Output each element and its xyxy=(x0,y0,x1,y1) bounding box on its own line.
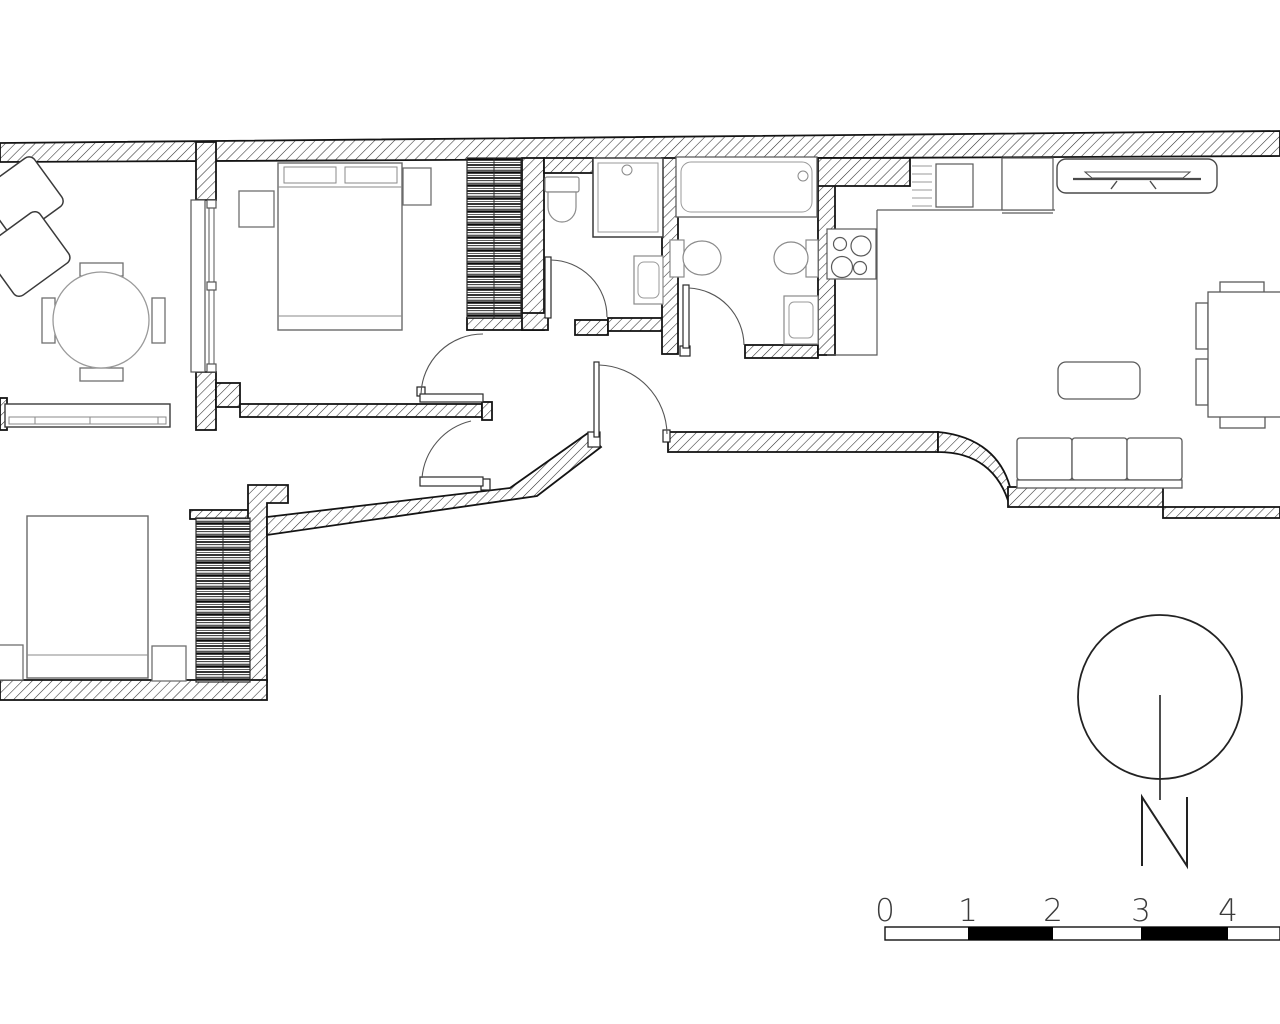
floor-plan-drawing: 0 1 2 3 4 xyxy=(0,0,1280,1024)
double-bed-icon xyxy=(278,163,402,330)
dining-chair-icon xyxy=(152,298,165,343)
scale-label-1: 1 xyxy=(958,893,978,929)
partition-tick xyxy=(207,282,216,290)
bathroom1-corner-piece xyxy=(522,313,548,330)
toilet-tank xyxy=(670,240,684,277)
washbasin-bowl xyxy=(638,262,659,298)
bedroom2-bottom-wall xyxy=(0,680,267,700)
sliding-partition xyxy=(191,200,216,372)
living-curved-wall xyxy=(938,432,1010,507)
shower-drain-icon xyxy=(622,165,632,175)
bathroom1-bottom-wall-a xyxy=(575,320,608,335)
dining-table-icon xyxy=(1208,292,1280,417)
washbasin-bowl xyxy=(789,302,813,338)
bathroom2-door-swing xyxy=(689,288,744,345)
scale-bar-black-segment xyxy=(968,927,1053,940)
nightstand-icon xyxy=(152,646,186,681)
bathroom-small xyxy=(545,158,663,304)
coffee-table-icon xyxy=(1058,362,1140,399)
bathroom-large xyxy=(670,157,818,344)
sitting-room-step-wall xyxy=(216,383,240,407)
sink-icon xyxy=(936,164,973,207)
window-sill xyxy=(9,417,166,424)
bedroom-bottom xyxy=(0,516,186,681)
bidet-bowl-icon xyxy=(774,242,808,274)
partition-panel xyxy=(191,200,205,372)
pillow-icon xyxy=(284,167,336,183)
scale-bar-black-segment xyxy=(1141,927,1228,940)
sofa-seat xyxy=(1072,438,1127,480)
toilet-bowl-icon xyxy=(548,192,576,222)
drainer-icon xyxy=(912,166,932,206)
entry-door-leaf xyxy=(594,362,599,437)
sofa-seat xyxy=(1127,438,1182,480)
corridor-door-leaf xyxy=(420,477,483,486)
nightstand-icon xyxy=(403,168,431,205)
chair-icon xyxy=(1196,359,1208,405)
sofa-icon xyxy=(1017,438,1182,488)
scale-label-0: 0 xyxy=(875,893,895,929)
appliance-unit xyxy=(1002,158,1053,210)
scale-bar: 0 1 2 3 4 xyxy=(875,893,1280,940)
bedroom-top xyxy=(239,163,431,330)
toilet-bowl-icon xyxy=(683,241,721,275)
bedroom1-door-leaf xyxy=(420,394,483,402)
kitchen-top-pier xyxy=(818,158,910,186)
scale-label-3: 3 xyxy=(1131,893,1151,929)
bedroom1-door-post xyxy=(482,402,492,420)
floor-plan-page: 0 1 2 3 4 xyxy=(0,0,1280,1024)
bedroom1-door-swing xyxy=(421,334,483,394)
partition-stub-upper xyxy=(196,142,216,200)
north-letter-N xyxy=(1142,797,1187,866)
dining-chair-icon xyxy=(80,368,123,381)
nightstand-icon xyxy=(0,645,23,680)
bathtub-drain-icon xyxy=(798,171,808,181)
north-symbol xyxy=(1078,615,1242,866)
pillow-icon xyxy=(345,167,397,183)
sofa-seat xyxy=(1017,438,1072,480)
bedroom1-bottom-wall xyxy=(240,404,482,417)
sitting-room xyxy=(0,154,170,427)
partition-tick xyxy=(207,200,216,208)
partition-tick xyxy=(207,364,216,372)
corridor-door-swing xyxy=(422,421,471,478)
chair-icon xyxy=(1220,416,1265,428)
bathroom2-door-leaf xyxy=(683,285,689,348)
bathtub-inner xyxy=(681,162,812,212)
nightstand-icon xyxy=(239,191,274,227)
kitchen xyxy=(827,158,1055,355)
partition-stub-lower xyxy=(196,372,216,430)
dining-set xyxy=(1196,282,1280,428)
double-bed-icon xyxy=(27,516,148,678)
living-bottom-wall-step xyxy=(1163,507,1280,518)
bathroom2-bottom-wall xyxy=(745,345,818,358)
bathroom1-top-pier xyxy=(544,158,593,173)
bathroom1-bottom-wall-b xyxy=(608,318,667,331)
entry-bottom-wall xyxy=(668,432,938,452)
living-dining xyxy=(1017,159,1280,488)
toilet-tank xyxy=(545,177,579,192)
scale-label-2: 2 xyxy=(1043,893,1063,929)
round-table-icon xyxy=(53,272,149,368)
entry-door-swing xyxy=(599,365,667,434)
sofa-front xyxy=(1017,480,1182,488)
bathroom1-door-swing xyxy=(551,260,607,317)
chair-icon xyxy=(1196,303,1208,349)
living-bottom-wall xyxy=(1008,487,1163,507)
scale-label-4: 4 xyxy=(1218,893,1238,929)
wardrobe1-side-wall xyxy=(522,158,544,330)
bathroom1-door-leaf xyxy=(545,257,551,318)
